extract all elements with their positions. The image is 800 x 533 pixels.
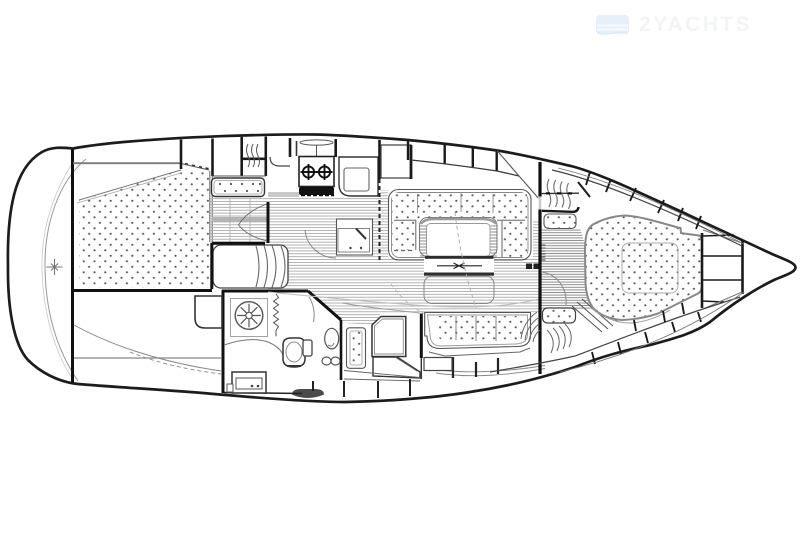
- svg-text:2YACHTS: 2YACHTS: [639, 13, 752, 36]
